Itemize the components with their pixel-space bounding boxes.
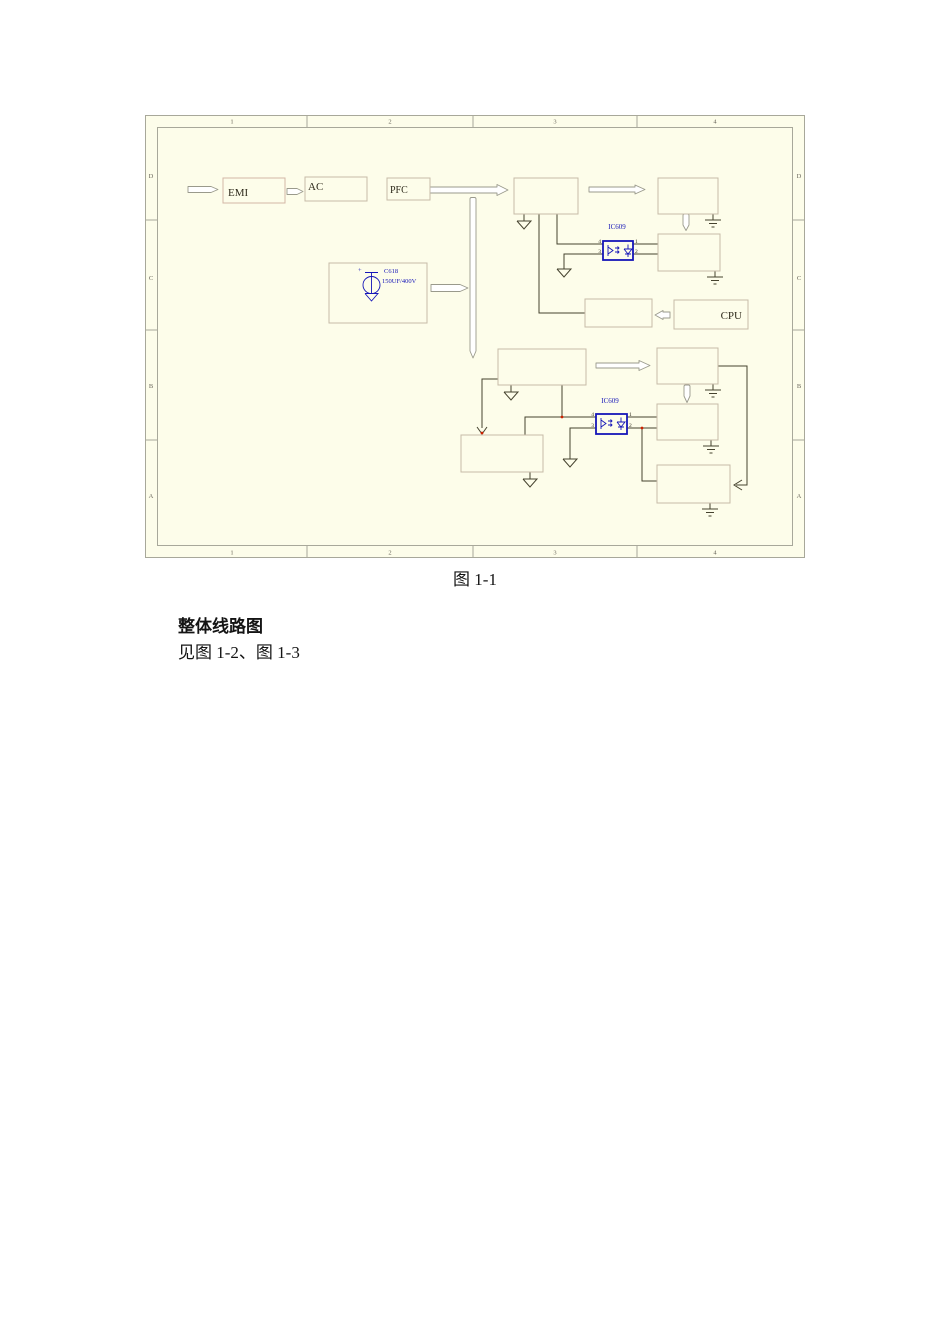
capacitor-value: 150UF/400V <box>382 278 417 285</box>
junction-dot <box>641 427 644 430</box>
document-page: 1 2 3 4 1 2 3 4 D C B A D C B A <box>0 0 950 1344</box>
schematic-canvas: 1 2 3 4 1 2 3 4 D C B A D C B A <box>145 115 805 558</box>
unlabeled-block-5 <box>498 349 586 385</box>
capacitor-polarity: + <box>358 267 362 274</box>
unlabeled-block-1 <box>514 178 578 214</box>
ruler-col-3-bottom: 3 <box>553 550 556 557</box>
ruler-row-a-left: A <box>149 493 154 500</box>
unlabeled-block-7 <box>657 404 718 440</box>
cpu-label: CPU <box>721 310 742 322</box>
vertical-bus-arrow-icon <box>470 198 476 359</box>
opto2-pin1: 1 <box>629 412 632 418</box>
opto2-pin4: 4 <box>591 412 594 418</box>
emi-label: EMI <box>228 187 249 199</box>
opto2-pin2: 2 <box>629 423 632 429</box>
opto1-pin3: 3 <box>598 249 601 255</box>
unlabeled-block-2 <box>658 178 718 214</box>
ruler-col-3-top: 3 <box>553 119 556 126</box>
opto1-pin4: 4 <box>598 239 601 245</box>
opto1-pin2: 2 <box>635 249 638 255</box>
opto1-refdes: IC609 <box>608 223 626 231</box>
section-heading: 整体线路图 <box>178 612 263 637</box>
section-text: 见图 1-2、图 1-3 <box>178 638 300 663</box>
ac-label: AC <box>308 181 323 193</box>
unlabeled-block-9 <box>657 465 730 503</box>
ruler-row-d-left: D <box>149 173 154 180</box>
pfc-label: PFC <box>390 185 408 196</box>
figure-caption: 图 1-1 <box>145 565 805 590</box>
schematic-figure: 1 2 3 4 1 2 3 4 D C B A D C B A <box>145 115 805 558</box>
junction-dot <box>481 432 484 435</box>
ruler-row-a-right: A <box>797 493 802 500</box>
unlabeled-block-4 <box>585 299 652 327</box>
ruler-row-c-right: C <box>797 275 801 282</box>
ruler-col-1-bottom: 1 <box>230 550 233 557</box>
opto2-pin3: 3 <box>591 423 594 429</box>
opto2-refdes: IC609 <box>601 397 619 405</box>
ruler-row-c-left: C <box>149 275 153 282</box>
capacitor-block <box>329 263 427 323</box>
unlabeled-block-3 <box>658 234 720 271</box>
input-flow-arrow-icon <box>188 187 218 193</box>
ruler-col-2-top: 2 <box>388 119 391 126</box>
ruler-col-1-top: 1 <box>230 119 233 126</box>
ruler-row-b-right: B <box>797 383 802 390</box>
ruler-row-b-left: B <box>149 383 154 390</box>
unlabeled-block-6 <box>657 348 718 384</box>
ruler-col-2-bottom: 2 <box>388 550 391 557</box>
capacitor-refdes: C618 <box>384 268 398 275</box>
unlabeled-block-8 <box>461 435 543 472</box>
junction-dot <box>561 416 564 419</box>
ruler-row-d-right: D <box>797 173 802 180</box>
opto1-pin1: 1 <box>635 239 638 245</box>
cap-to-bus-arrow-icon <box>431 285 468 292</box>
